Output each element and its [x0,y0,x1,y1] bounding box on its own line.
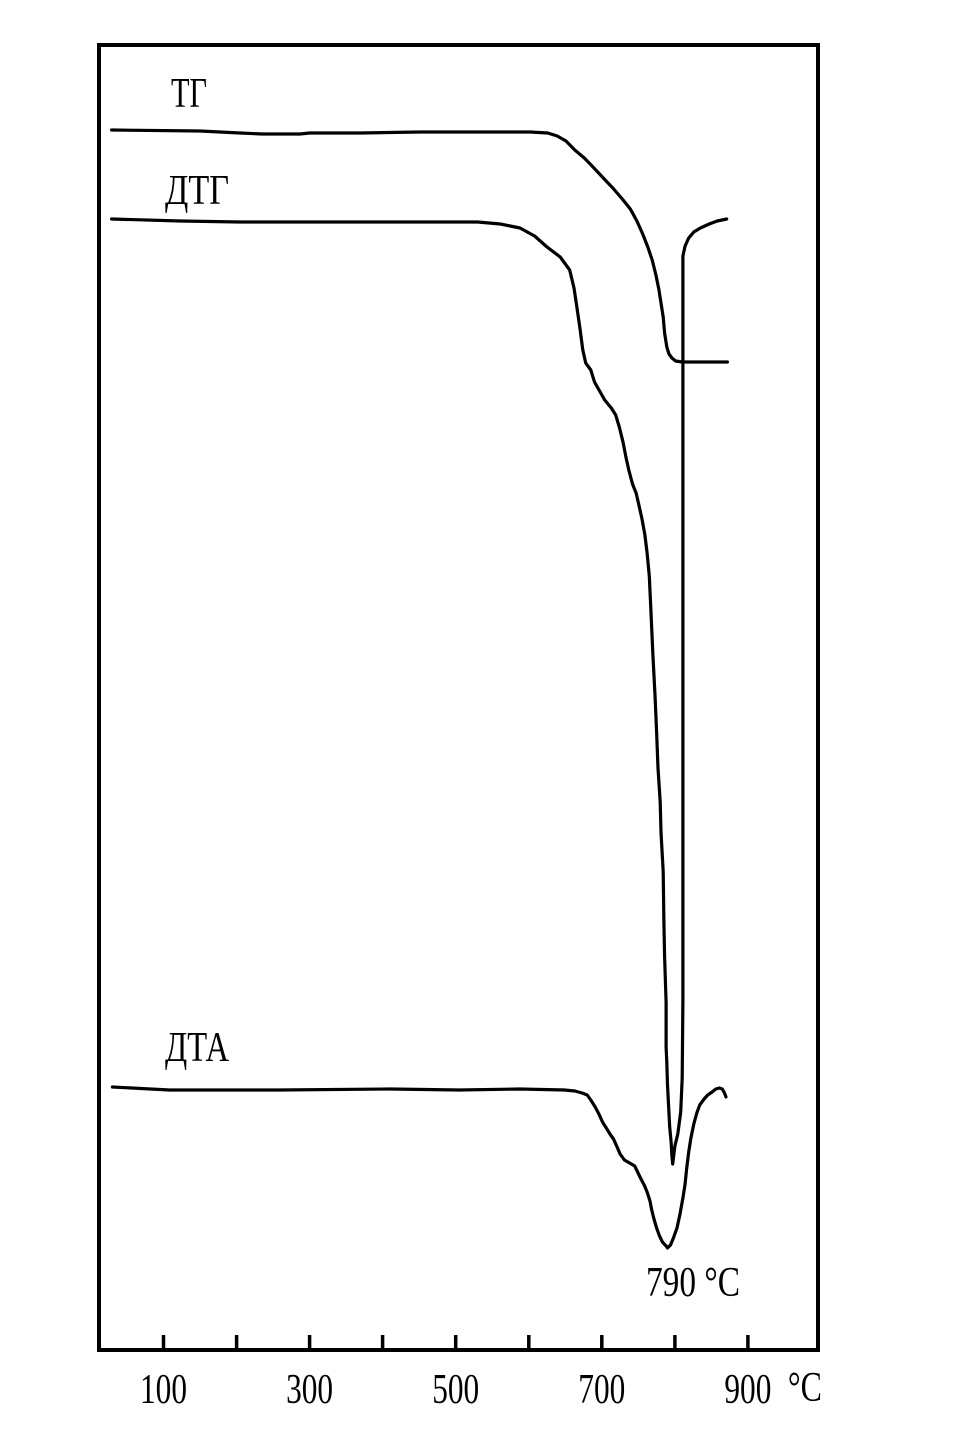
x-axis-unit-label: °C [788,1365,822,1411]
x-axis-labels: 100300500700900°C [140,1365,822,1413]
dta-curve [112,1087,726,1248]
dtg-curve-label: ДТГ [165,168,229,214]
tg-curve-label: ТГ [171,71,207,117]
thermogram-figure: 100300500700900°C ТГДТГДТА790 °C [0,0,964,1436]
x-axis-tick-label-100: 100 [140,1367,187,1413]
peak-temperature-label: 790 °C [646,1260,740,1306]
dta-curve-label: ДТА [165,1025,230,1071]
dtg-curve [112,219,727,1164]
tg-curve [112,130,728,362]
x-axis-tick-label-300: 300 [286,1367,333,1413]
x-axis-tick-label-700: 700 [578,1367,625,1413]
thermal-analysis-chart: 100300500700900°C ТГДТГДТА790 °C [0,0,964,1436]
x-axis-tick-label-900: 900 [724,1367,771,1413]
plot-border [99,45,818,1350]
curves [112,130,728,1248]
x-axis-tick-label-500: 500 [432,1367,479,1413]
x-axis-ticks [164,1335,748,1348]
